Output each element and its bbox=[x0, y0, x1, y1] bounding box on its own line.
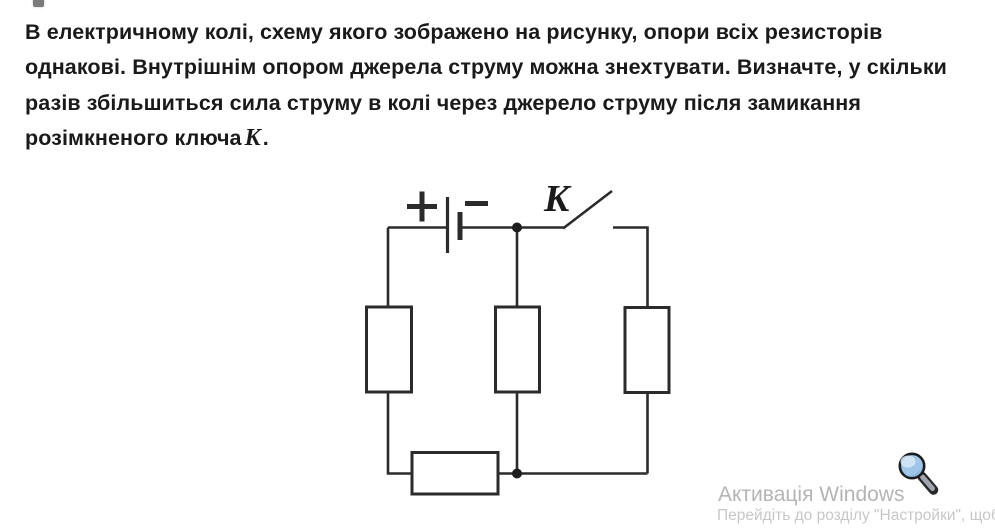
resistor-right bbox=[625, 308, 669, 393]
resistor-left bbox=[367, 307, 412, 392]
battery-plus-symbol bbox=[407, 192, 437, 222]
windows-activation-watermark-title: Активація Windows bbox=[718, 483, 904, 507]
resistor-middle bbox=[496, 307, 540, 392]
windows-activation-watermark-subtitle: Перейдіть до розділу "Настройки", щоб bbox=[717, 507, 995, 525]
wire-left-lower bbox=[388, 392, 412, 474]
resistor-bottom bbox=[412, 453, 498, 495]
wire-top-right bbox=[613, 228, 648, 308]
magnifier-icon[interactable] bbox=[900, 454, 934, 490]
circuit-diagram: K bbox=[0, 0, 995, 529]
switch-blade bbox=[563, 191, 612, 229]
junction-dot-bottom bbox=[512, 469, 522, 479]
switch-label: K bbox=[543, 178, 572, 220]
junction-dot-top bbox=[512, 223, 522, 233]
